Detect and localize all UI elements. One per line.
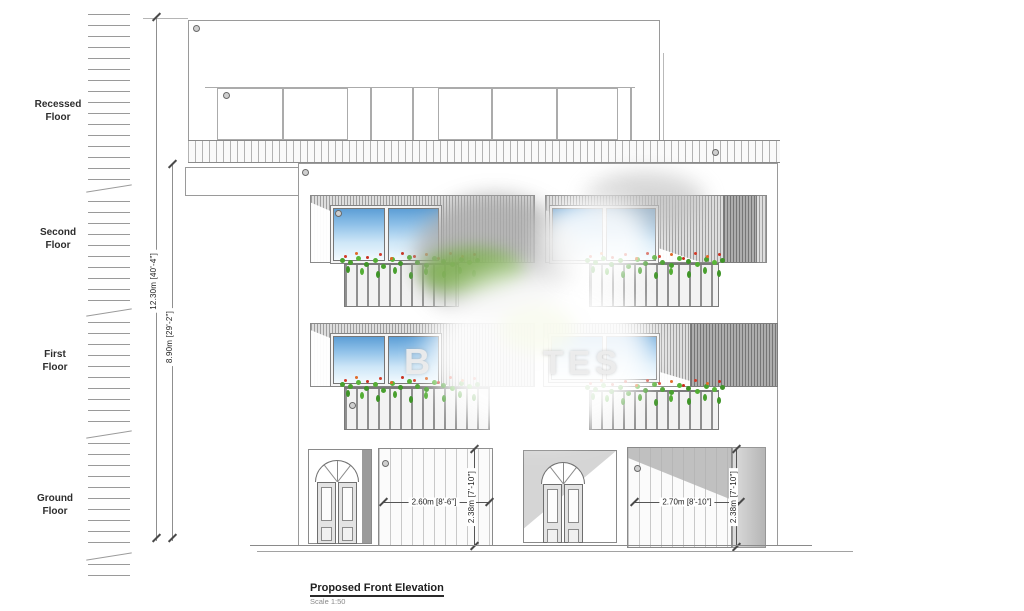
floor-label-line: Floor: [16, 111, 100, 124]
dim-text-garage-right-height: 2.38m [7'-10"]: [729, 468, 738, 526]
door-leaf: [338, 482, 357, 544]
note-marker-icon: [223, 92, 230, 99]
fanlight-icon: [315, 460, 359, 482]
foliage: [346, 266, 350, 273]
roof-railing-panel: [557, 88, 618, 140]
door-jamb-shadow: [362, 450, 371, 543]
dim-text-upper-height: 8.90m [29'-2"]: [165, 308, 174, 366]
watermark-text-fragment: TES: [543, 344, 622, 382]
flowers: [344, 379, 347, 382]
door-leaf: [564, 484, 583, 543]
left-entrance-door: [315, 460, 359, 544]
elevation-drawing: Recessed Floor Second Floor First Floor …: [0, 0, 1024, 611]
floor-label-line: Floor: [13, 361, 97, 374]
floor-label-recessed: Recessed Floor: [16, 98, 100, 124]
door-leaf: [543, 484, 562, 543]
extension-line: [143, 18, 188, 19]
floor-label-line: Ground: [13, 492, 97, 505]
side-step-wall: [185, 167, 299, 196]
floor-label-line: Recessed: [16, 98, 100, 111]
roof-railing-post: [412, 88, 414, 140]
roof-flue-line: [663, 53, 664, 140]
fanlight-icon: [541, 462, 585, 484]
note-marker-icon: [302, 169, 309, 176]
foliage: [340, 258, 345, 263]
dim-tick: [168, 533, 177, 542]
hatch-break-line: [88, 306, 130, 318]
floor-label-line: First: [13, 348, 97, 361]
note-marker-icon: [193, 25, 200, 32]
hatch-break-line: [88, 550, 130, 562]
second-floor-louvre-panel: [723, 195, 757, 263]
note-marker-icon: [382, 460, 389, 467]
pavement-line: [257, 551, 853, 552]
foliage: [340, 382, 345, 387]
dim-text-garage-right-width: 2.70m [8'-10"]: [659, 498, 714, 507]
dim-tick: [152, 533, 161, 542]
drawing-scale: Scale 1:50: [310, 597, 345, 606]
flowers: [344, 255, 347, 258]
dim-text-garage-left-height: 2.38m [7'-10"]: [467, 468, 476, 526]
roof-railing-panel: [283, 88, 348, 140]
right-entrance-door: [541, 462, 585, 543]
hatch-break-line: [88, 428, 130, 440]
note-marker-icon: [712, 149, 719, 156]
watermark-white-wash: [540, 196, 650, 286]
street-level-line: [250, 545, 812, 546]
note-marker-icon: [335, 210, 342, 217]
dim-text-garage-left-width: 2.60m [8'-6"]: [409, 498, 460, 507]
roof-railing-panel: [492, 88, 557, 140]
note-marker-icon: [634, 465, 641, 472]
floor-label-ground: Ground Floor: [13, 492, 97, 518]
floor-label-line: Second: [16, 226, 100, 239]
dim-text-overall-height: 12.30m [40'-4"]: [149, 250, 158, 313]
roof-railing-panel: [438, 88, 492, 140]
roof-railing-post: [370, 88, 372, 140]
drawing-title: Proposed Front Elevation: [310, 582, 444, 597]
hatch-break-line: [88, 182, 130, 194]
floor-label-first: First Floor: [13, 348, 97, 374]
floor-label-line: Floor: [13, 505, 97, 518]
floor-label-line: Floor: [16, 239, 100, 252]
note-marker-icon: [349, 402, 356, 409]
roof-railing-post: [630, 88, 632, 140]
foliage: [346, 390, 350, 397]
watermark-text-fragment: B: [404, 341, 435, 383]
floor-label-second: Second Floor: [16, 226, 100, 252]
parapet-fascia: [188, 140, 780, 163]
door-leaf: [317, 482, 336, 544]
